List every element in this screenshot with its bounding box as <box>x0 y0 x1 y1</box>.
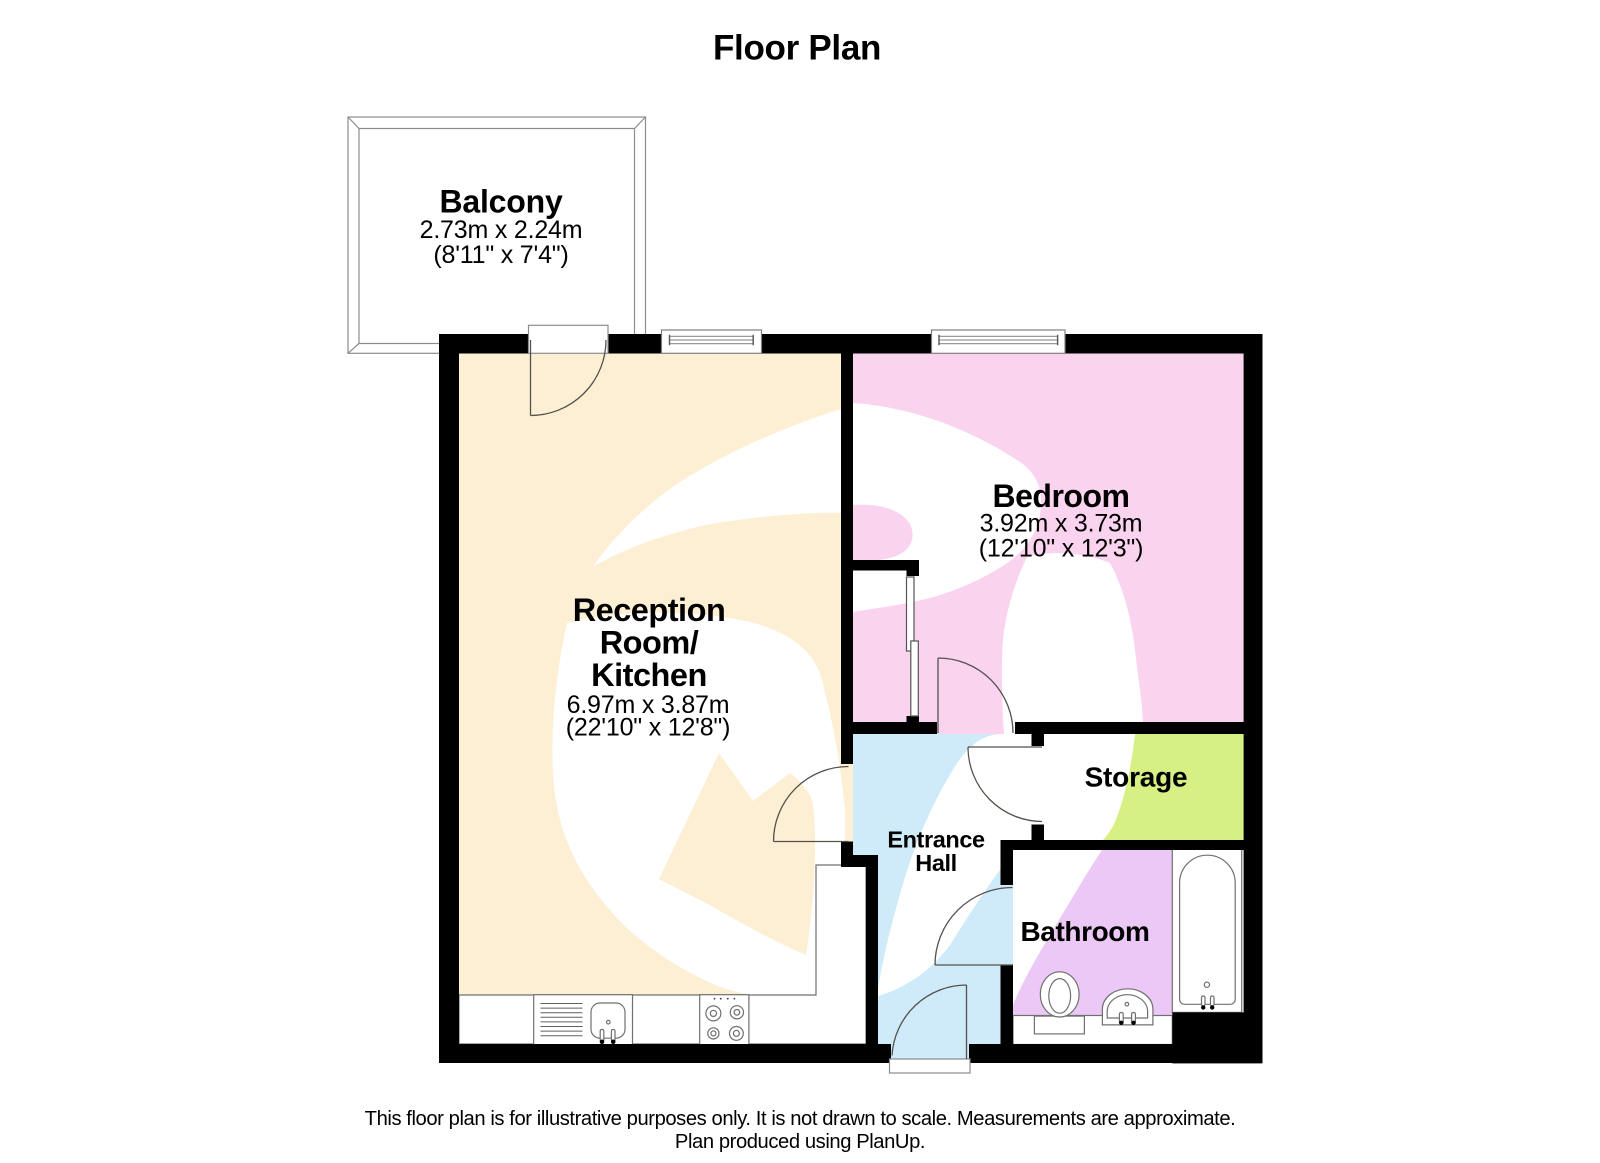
svg-text:Plan produced using PlanUp.: Plan produced using PlanUp. <box>675 1131 925 1153</box>
svg-text:Storage: Storage <box>1085 762 1188 793</box>
svg-text:Room/: Room/ <box>600 625 699 661</box>
svg-text:2.73m x 2.24m: 2.73m x 2.24m <box>420 216 583 244</box>
svg-text:Bathroom: Bathroom <box>1020 916 1149 947</box>
svg-text:Floor Plan: Floor Plan <box>713 29 881 68</box>
svg-text:Hall: Hall <box>915 850 957 876</box>
svg-text:Entrance: Entrance <box>887 827 985 853</box>
svg-text:3.92m x 3.73m: 3.92m x 3.73m <box>980 510 1143 538</box>
svg-text:(8'11" x 7'4"): (8'11" x 7'4") <box>433 241 568 269</box>
svg-text:This floor plan is for illustr: This floor plan is for illustrative purp… <box>365 1108 1236 1130</box>
svg-text:Reception: Reception <box>573 592 726 628</box>
svg-text:(12'10" x 12'3"): (12'10" x 12'3") <box>979 535 1143 563</box>
svg-text:Kitchen: Kitchen <box>591 657 707 693</box>
svg-text:Balcony: Balcony <box>439 184 562 220</box>
svg-text:(22'10" x 12'8"): (22'10" x 12'8") <box>566 714 730 742</box>
